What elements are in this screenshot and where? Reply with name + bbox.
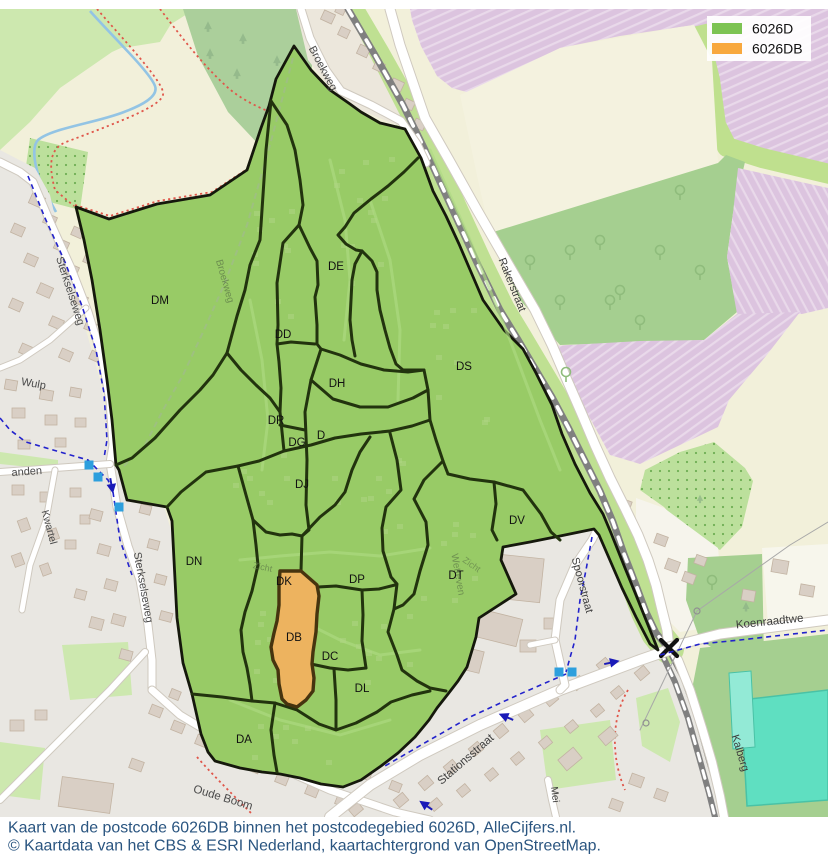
svg-text:DR: DR [268,415,285,427]
svg-text:6026DB: 6026DB [752,41,803,57]
svg-text:DE: DE [328,261,344,273]
svg-text:6026D: 6026D [752,21,793,37]
svg-text:DT: DT [448,570,463,582]
svg-text:DN: DN [186,556,203,568]
svg-text:Kaart van de postcode 6026DB b: Kaart van de postcode 6026DB binnen het … [8,820,576,837]
svg-text:Mei: Mei [548,786,561,803]
svg-text:DS: DS [456,361,472,373]
svg-text:DL: DL [355,683,370,695]
svg-text:DA: DA [236,734,252,746]
svg-text:DH: DH [329,378,346,390]
svg-text:anden: anden [11,465,42,479]
svg-text:DG: DG [288,437,305,449]
svg-text:DC: DC [322,651,339,663]
svg-text:DB: DB [286,632,302,644]
svg-text:DD: DD [275,329,292,341]
svg-text:DJ: DJ [295,479,309,491]
svg-text:DM: DM [151,295,169,307]
svg-text:DP: DP [349,574,365,586]
svg-text:DK: DK [276,576,292,588]
svg-text:© Kaartdata van het CBS & ESRI: © Kaartdata van het CBS & ESRI Nederland… [8,838,601,855]
svg-text:D: D [317,430,325,442]
svg-text:DV: DV [509,515,525,527]
